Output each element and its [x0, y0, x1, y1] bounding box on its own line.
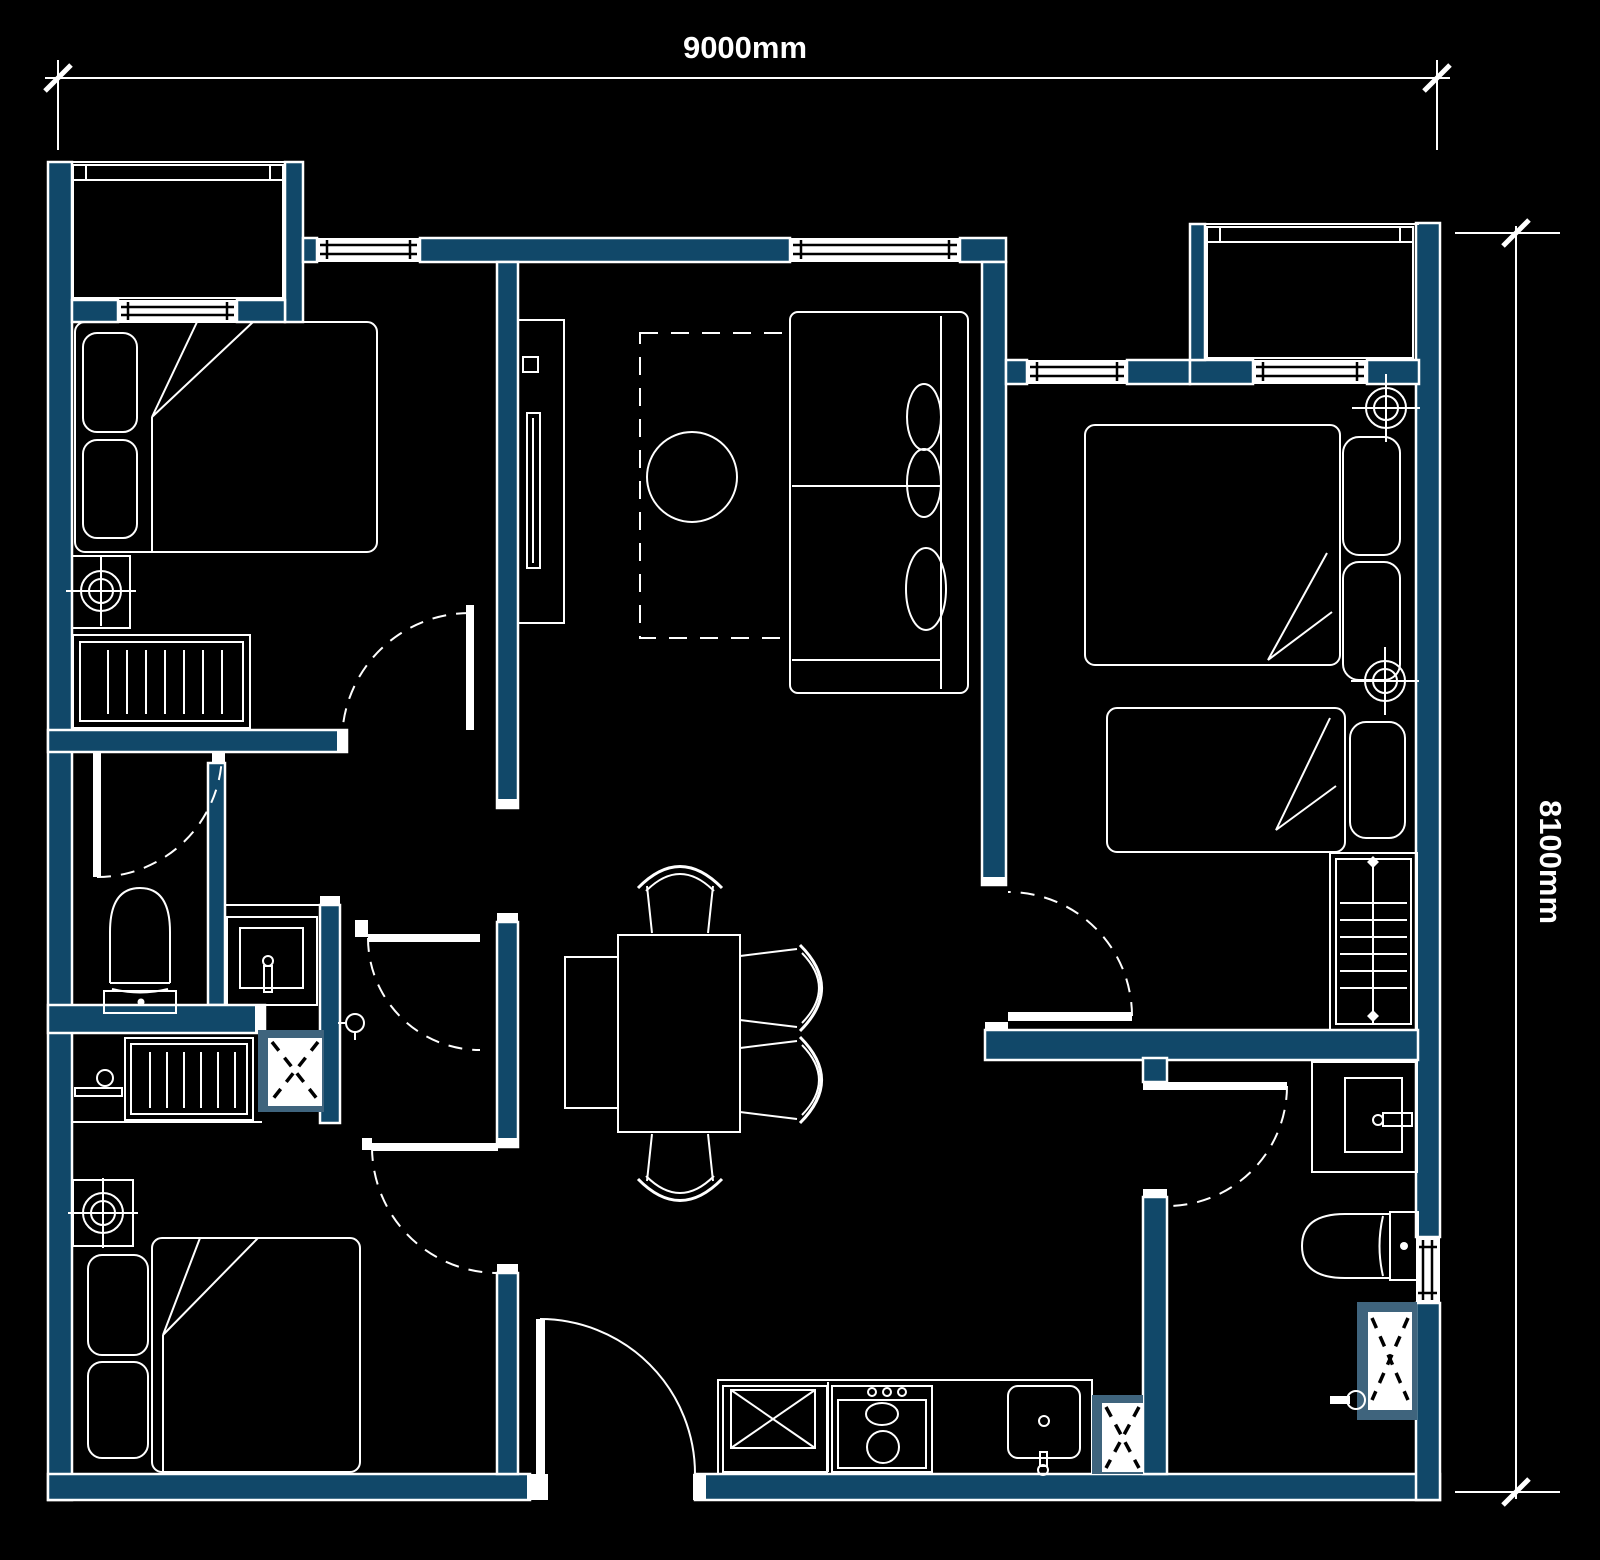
duvet-fold-icon — [1268, 553, 1332, 660]
towel-rail-icon — [75, 1088, 122, 1096]
dining-chair-icon — [638, 1134, 722, 1201]
single-bed-icon — [1107, 708, 1405, 852]
duvet-fold-icon — [163, 1238, 258, 1335]
entry-door — [536, 1319, 695, 1475]
dining-bench-icon — [565, 957, 618, 1108]
wall-toilet-vanity — [208, 763, 225, 1005]
pillow-icon — [88, 1255, 148, 1355]
ceiling-fan-icon — [66, 556, 136, 628]
wall-hall-upper — [497, 262, 518, 808]
wall-bed2-top-a — [1006, 360, 1027, 384]
wall-balcony1-right — [285, 162, 303, 322]
wall-right-lower — [1416, 1303, 1440, 1500]
tv-unit-icon — [518, 320, 564, 623]
ceiling-fan-icon — [1351, 647, 1419, 715]
walls — [48, 162, 1440, 1500]
bathroom3-door-swing — [1167, 1082, 1287, 1206]
bedroom2 — [1008, 374, 1420, 1030]
wall-bed1-bottom — [48, 730, 347, 752]
wardrobe-icon — [1330, 853, 1417, 1030]
wall-top-c — [960, 238, 1006, 262]
wall-top-a — [303, 238, 317, 262]
bedroom1-door-swing — [342, 605, 474, 741]
duvet-fold-icon — [152, 322, 253, 417]
toilet-icon — [104, 888, 176, 1013]
dimension-right: 8100mm — [1455, 220, 1568, 1505]
window-bed1-top — [317, 238, 420, 262]
window-bed1-balcony — [118, 300, 237, 322]
shower-mixer-icon — [338, 1014, 364, 1040]
dining-chair-icon — [638, 867, 722, 934]
pillow-icon — [1350, 722, 1405, 838]
floor-plan-page: 9000mm 8100mm — [0, 0, 1600, 1560]
dining-chair-icon — [740, 945, 822, 1031]
pillow-icon — [83, 440, 137, 538]
bedroom3-door-swing — [372, 1143, 498, 1273]
bedroom1 — [66, 322, 474, 741]
balcony-top-left — [48, 162, 303, 298]
cushion-icon — [907, 449, 941, 517]
toilet-icon — [1302, 1212, 1418, 1280]
wall-bed2-south — [985, 1030, 1418, 1060]
bathroom-bottom-right — [1167, 1062, 1418, 1420]
sofa-icon — [790, 312, 968, 693]
washing-machine-icon — [1092, 1395, 1143, 1474]
ceiling-fan-icon — [68, 1178, 138, 1248]
duvet-fold-icon — [1276, 718, 1336, 830]
wall-bed2-top-c — [1190, 360, 1253, 384]
wall-bottom-right — [695, 1474, 1440, 1500]
wall-hall-lower — [497, 1273, 518, 1474]
wall-bed1-window-right — [237, 300, 285, 322]
wall-bottom-left — [48, 1474, 530, 1500]
dining-chair-icon — [740, 1037, 822, 1123]
fridge-icon — [723, 1386, 827, 1472]
ensuite-strip — [72, 1030, 324, 1122]
wall-balcony2-left — [1190, 224, 1205, 360]
windows — [118, 238, 1440, 1303]
dining-area — [565, 867, 822, 1201]
height-dimension-label: 8100mm — [1533, 800, 1568, 924]
wall-bath-bottom — [48, 1005, 265, 1033]
wall-hall-mid — [497, 922, 518, 1147]
window-living-top — [790, 238, 960, 262]
living-room — [518, 312, 968, 693]
dining-table-icon — [618, 935, 740, 1132]
width-dimension-label: 9000mm — [683, 30, 807, 65]
toilet-door-swing — [93, 752, 222, 877]
floor-plan-canvas: 9000mm 8100mm — [0, 0, 1600, 1560]
double-bed-icon — [1085, 425, 1400, 680]
pillow-icon — [1343, 437, 1400, 555]
pillow-icon — [88, 1362, 148, 1458]
wall-bed2-top-d — [1367, 360, 1419, 384]
radiator-icon — [125, 1038, 253, 1120]
bedroom2-door-swing — [1008, 892, 1132, 1021]
shower-tray-icon — [258, 1030, 324, 1112]
shower-mixer-icon — [75, 1070, 122, 1096]
wall-top-b — [420, 238, 790, 262]
wall-left-outer — [48, 162, 72, 1500]
kitchen-sink-icon — [1008, 1386, 1080, 1475]
vanity-sink-icon — [225, 905, 320, 1005]
wall-end-caps — [212, 730, 1167, 1500]
wall-bath3-west — [1143, 1197, 1167, 1474]
wall-bed2-top-b — [1127, 360, 1190, 384]
double-bed-icon — [75, 322, 377, 552]
bedroom3 — [68, 1143, 498, 1472]
balcony-top-right — [1190, 224, 1419, 358]
window-bath3-right — [1416, 1237, 1440, 1303]
dresser-icon — [73, 635, 250, 728]
pillow-icon — [83, 333, 137, 432]
vanity-sink-icon — [1312, 1062, 1417, 1172]
double-bed-icon — [88, 1238, 360, 1472]
wall-bath3-stub — [1143, 1058, 1167, 1082]
cushion-icon — [907, 384, 941, 450]
stove-icon — [832, 1386, 932, 1472]
window-bed2-top — [1027, 360, 1127, 384]
dimension-top: 9000mm — [45, 30, 1450, 150]
shower-room-door-swing — [368, 934, 480, 1050]
shower-room — [338, 934, 480, 1050]
window-bed2-balcony — [1253, 360, 1367, 384]
rug-icon — [640, 333, 790, 638]
wall-living-bed2 — [982, 262, 1006, 885]
kitchen — [718, 1380, 1143, 1475]
coffee-table-icon — [647, 432, 737, 522]
wall-bed1-window-left — [72, 300, 118, 322]
toilet-room — [93, 752, 320, 1013]
shower-tray-icon — [1357, 1302, 1417, 1420]
